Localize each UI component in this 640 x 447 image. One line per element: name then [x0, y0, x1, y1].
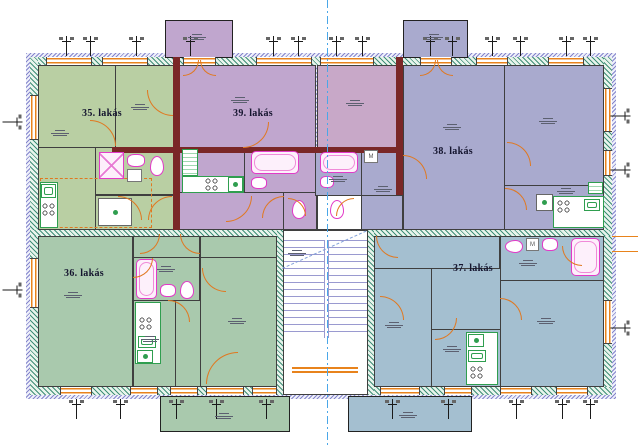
appliance-icon [468, 334, 484, 347]
section-centerline [327, 0, 328, 447]
dimension-tick [611, 321, 631, 336]
party-wall-35-39 [173, 57, 180, 230]
room-annotation [226, 318, 248, 324]
dimension-tick [329, 36, 344, 56]
dimension-tick [69, 399, 84, 419]
washing-machine-icon: M [526, 238, 539, 251]
window [30, 258, 38, 308]
apt37-living-room [500, 280, 604, 387]
apt38-bedroom [504, 65, 604, 186]
bathtub-icon [320, 152, 358, 173]
washbasin-icon [127, 154, 145, 167]
washbasin-icon [251, 177, 267, 189]
appliance-icon [228, 177, 243, 192]
cooktop-icon [469, 365, 484, 380]
dimension-tick [3, 115, 23, 130]
window [130, 387, 158, 395]
appliance-icon [137, 350, 153, 363]
dimension-tick [441, 399, 456, 419]
room-annotation [129, 104, 151, 110]
apt36-bedroom [200, 236, 277, 258]
dimension-tick [291, 36, 306, 56]
window [102, 57, 148, 65]
apt38-hall-lower [361, 195, 403, 230]
washing-machine-icon: M [364, 150, 378, 163]
dimension-tick [611, 109, 631, 124]
room-annotation [327, 176, 349, 182]
room-annotation [555, 188, 577, 194]
dimension-tick [3, 283, 23, 298]
washing-machine-icon [127, 169, 142, 182]
window [320, 57, 374, 65]
toilet-icon [505, 240, 523, 253]
dimension-tick [83, 36, 98, 56]
toilet-icon [150, 156, 164, 176]
window [500, 387, 532, 395]
dimension-tick [583, 399, 598, 419]
cooktop-icon [556, 199, 571, 214]
window [548, 57, 584, 65]
room-annotation [441, 124, 463, 130]
apt39-bedroom [317, 65, 397, 148]
room-annotation [517, 260, 539, 266]
room-annotation [49, 130, 71, 136]
room-annotation [229, 97, 251, 103]
room-annotation [62, 292, 84, 298]
room-annotation [186, 34, 208, 40]
room-annotation [344, 100, 366, 106]
kitchen-sink-icon [468, 350, 486, 362]
washbasin-icon [160, 284, 176, 297]
room-annotation [139, 336, 161, 342]
washbasin-icon [542, 238, 558, 251]
dimension-tick [555, 399, 570, 419]
appliance-icon [536, 194, 553, 211]
terrace-door-36 [206, 387, 244, 395]
kitchen-cabinet [588, 182, 603, 194]
apartment-label-39: 39. lakás [213, 108, 293, 119]
apartment-label-38: 38. lakás [413, 146, 493, 157]
entrance-door-line-1 [292, 367, 358, 369]
party-wall-39-38 [396, 57, 403, 195]
room-annotation [441, 346, 463, 352]
window [444, 387, 472, 395]
apt36-living-room [38, 236, 133, 387]
kitchen-sink-icon [41, 184, 56, 198]
dimension-tick [509, 399, 524, 419]
side-canopy [612, 236, 638, 252]
apartment-label-36: 36. lakás [44, 268, 124, 279]
room-annotation [383, 322, 405, 328]
dimension-tick [129, 36, 144, 56]
window [476, 57, 508, 65]
dimension-tick [59, 36, 74, 56]
dimension-tick [169, 399, 184, 419]
window [30, 95, 38, 140]
cooktop-icon [138, 316, 153, 331]
dimension-tick [513, 36, 528, 56]
kitchen-cabinet [182, 149, 198, 176]
room-annotation [372, 186, 394, 192]
dimension-tick [611, 163, 631, 178]
dimension-tick [485, 36, 500, 56]
room-annotation [535, 318, 557, 324]
dimension-tick [113, 399, 128, 419]
dimension-tick [445, 36, 460, 56]
kitchen-sink-icon [584, 199, 600, 211]
toilet-icon [180, 281, 194, 299]
room-annotation [423, 34, 445, 40]
floor-plan: M M 35. lakás 39. lakás 38. lakás 36. la… [0, 0, 640, 447]
room-annotation [155, 266, 177, 272]
dimension-tick [559, 36, 574, 56]
shower-icon [99, 152, 124, 179]
window [170, 387, 198, 395]
room-annotation [286, 250, 308, 256]
dimension-tick [355, 36, 370, 56]
bathtub-icon [251, 151, 299, 174]
window [252, 387, 277, 395]
terrace-door-37 [380, 387, 420, 395]
cooktop-icon [204, 177, 219, 192]
room-annotation [397, 412, 419, 418]
room-annotation [213, 413, 235, 419]
window [46, 57, 92, 65]
apartment-label-37: 37. lakás [433, 263, 513, 274]
window [256, 57, 312, 65]
dimension-tick [259, 399, 274, 419]
dimension-tick [266, 36, 281, 56]
dimension-tick [583, 36, 598, 56]
room-annotation [537, 118, 559, 124]
window [556, 387, 588, 395]
entrance-door-line-2 [292, 371, 358, 373]
cooktop-icon [41, 202, 56, 217]
window [60, 387, 92, 395]
